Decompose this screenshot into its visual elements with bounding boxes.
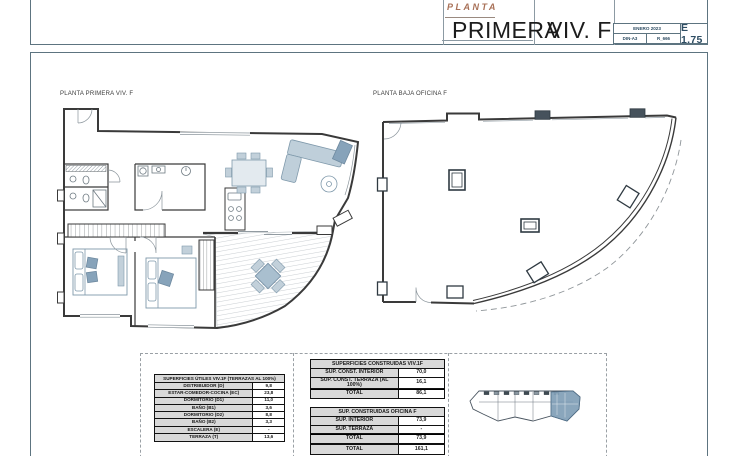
legend-divider: [448, 353, 449, 456]
row-label: TOTAL: [311, 435, 399, 443]
row-label: SUP. TERRAZA: [311, 426, 399, 434]
highlighted-unit-f: [551, 391, 580, 421]
row-value: 70,0: [399, 369, 444, 377]
table-superficies-construidas-oficina: SUP. CONSTRUIDAS OFICINA F SUP. INTERIOR…: [310, 407, 445, 444]
table-row: SUP. INTERIOR 73,9: [311, 417, 444, 426]
row-value: -: [253, 427, 284, 433]
row-label: ESTAR-COMEDOR-COCINA (EC): [155, 390, 253, 396]
row-value: 16,1: [399, 378, 444, 389]
office-door-swings: [384, 122, 431, 303]
row-label: BAÑO (B2): [155, 419, 253, 425]
grand-total-value: 161,1: [399, 445, 444, 454]
stairs: [68, 224, 165, 237]
row-label: TOTAL: [311, 390, 399, 398]
row-label: DISTRIBUIDOR (D): [155, 383, 253, 389]
row-label: DORMITORIO (D2): [155, 412, 253, 418]
grand-total-label: TOTAL: [311, 445, 399, 454]
row-value: 13,6: [253, 434, 284, 441]
table-row: TERRAZA (T) 13,6: [155, 434, 284, 441]
row-value: 3,6: [253, 405, 284, 411]
project-brand: PLANTA: [447, 2, 498, 12]
row-value: 11,0: [253, 398, 284, 404]
table-header: SUPERFICIES ÚTILES VIV.1F (TERRAZAS AL 1…: [155, 375, 284, 383]
table-row: ESCALERA (E) -: [155, 427, 284, 434]
sheet-format: DIN-A3: [614, 34, 647, 43]
table-grand-total: TOTAL 161,1: [310, 444, 445, 455]
meta-left: ENERO 2023 DIN-A3 R_666: [614, 24, 681, 43]
table-superficies-construidas-viv: SUPERFICIES CONSTRUIDAS VIV.1F SUP. CONS…: [310, 359, 445, 399]
table-superficies-utiles: SUPERFICIES ÚTILES VIV.1F (TERRAZAS AL 1…: [154, 374, 285, 442]
table-row: TOTAL 86,1: [311, 389, 444, 398]
table-row: SUP. TERRAZA -: [311, 426, 444, 435]
table-row: TOTAL 73,9: [311, 434, 444, 443]
table-row: DORMITORIO (D2) 8,8: [155, 412, 284, 419]
row-value: 73,9: [399, 417, 444, 425]
row-label: DORMITORIO (D1): [155, 398, 253, 404]
row-value: 23,8: [253, 390, 284, 396]
table-row: DORMITORIO (D1) 11,0: [155, 398, 284, 405]
row-value: -: [399, 426, 444, 434]
table-row: TOTAL 161,1: [311, 445, 444, 454]
table-header: SUP. CONSTRUIDAS OFICINA F: [311, 408, 444, 417]
sheet-title-unit: VIV. F: [547, 17, 612, 44]
wardrobe: [199, 240, 214, 290]
sheet-scale: E 1.75: [681, 24, 707, 43]
legend-divider: [293, 353, 294, 456]
row-label: SUP. CONST. TERRAZA (AL 100%): [311, 378, 399, 389]
title-underline: [442, 40, 533, 41]
row-value: 3,3: [253, 419, 284, 425]
row-value: 8,8: [253, 412, 284, 418]
row-label: TERRAZA (T): [155, 434, 253, 441]
row-label: SUP. INTERIOR: [311, 417, 399, 425]
row-label: BAÑO (B1): [155, 405, 253, 411]
table-row: SUP. CONST. TERRAZA (AL 100%) 16,1: [311, 378, 444, 390]
key-plan: [462, 376, 602, 444]
sheet-meta-box: ENERO 2023 DIN-A3 R_666 E 1.75: [613, 23, 708, 44]
table-row: BAÑO (B2) 3,3: [155, 419, 284, 426]
sheet-reference: R_666: [647, 34, 680, 43]
plan-title-left: PLANTA PRIMERA VIV. F: [60, 91, 133, 97]
row-value: 86,1: [399, 390, 444, 398]
plan-title-right: PLANTA BAJA OFICINA F: [373, 91, 447, 97]
projection-dashed-line: [476, 140, 681, 311]
floor-plan-oficina-f: [375, 100, 705, 335]
sheet-date: ENERO 2023: [614, 24, 680, 34]
row-label: SUP. CONST. INTERIOR: [311, 369, 399, 377]
fixtures: [66, 166, 245, 231]
table-header: SUPERFICIES CONSTRUIDAS VIV.1F: [311, 360, 444, 369]
row-value: 9,8: [253, 383, 284, 389]
title-block-divider: [443, 0, 444, 45]
drawing-sheet: PLANTA PRIMERA VIV. F ENERO 2023 DIN-A3 …: [0, 0, 756, 456]
floor-plan-viv-f: [40, 100, 370, 350]
row-value: 73,9: [399, 435, 444, 443]
row-label: ESCALERA (E): [155, 427, 253, 433]
